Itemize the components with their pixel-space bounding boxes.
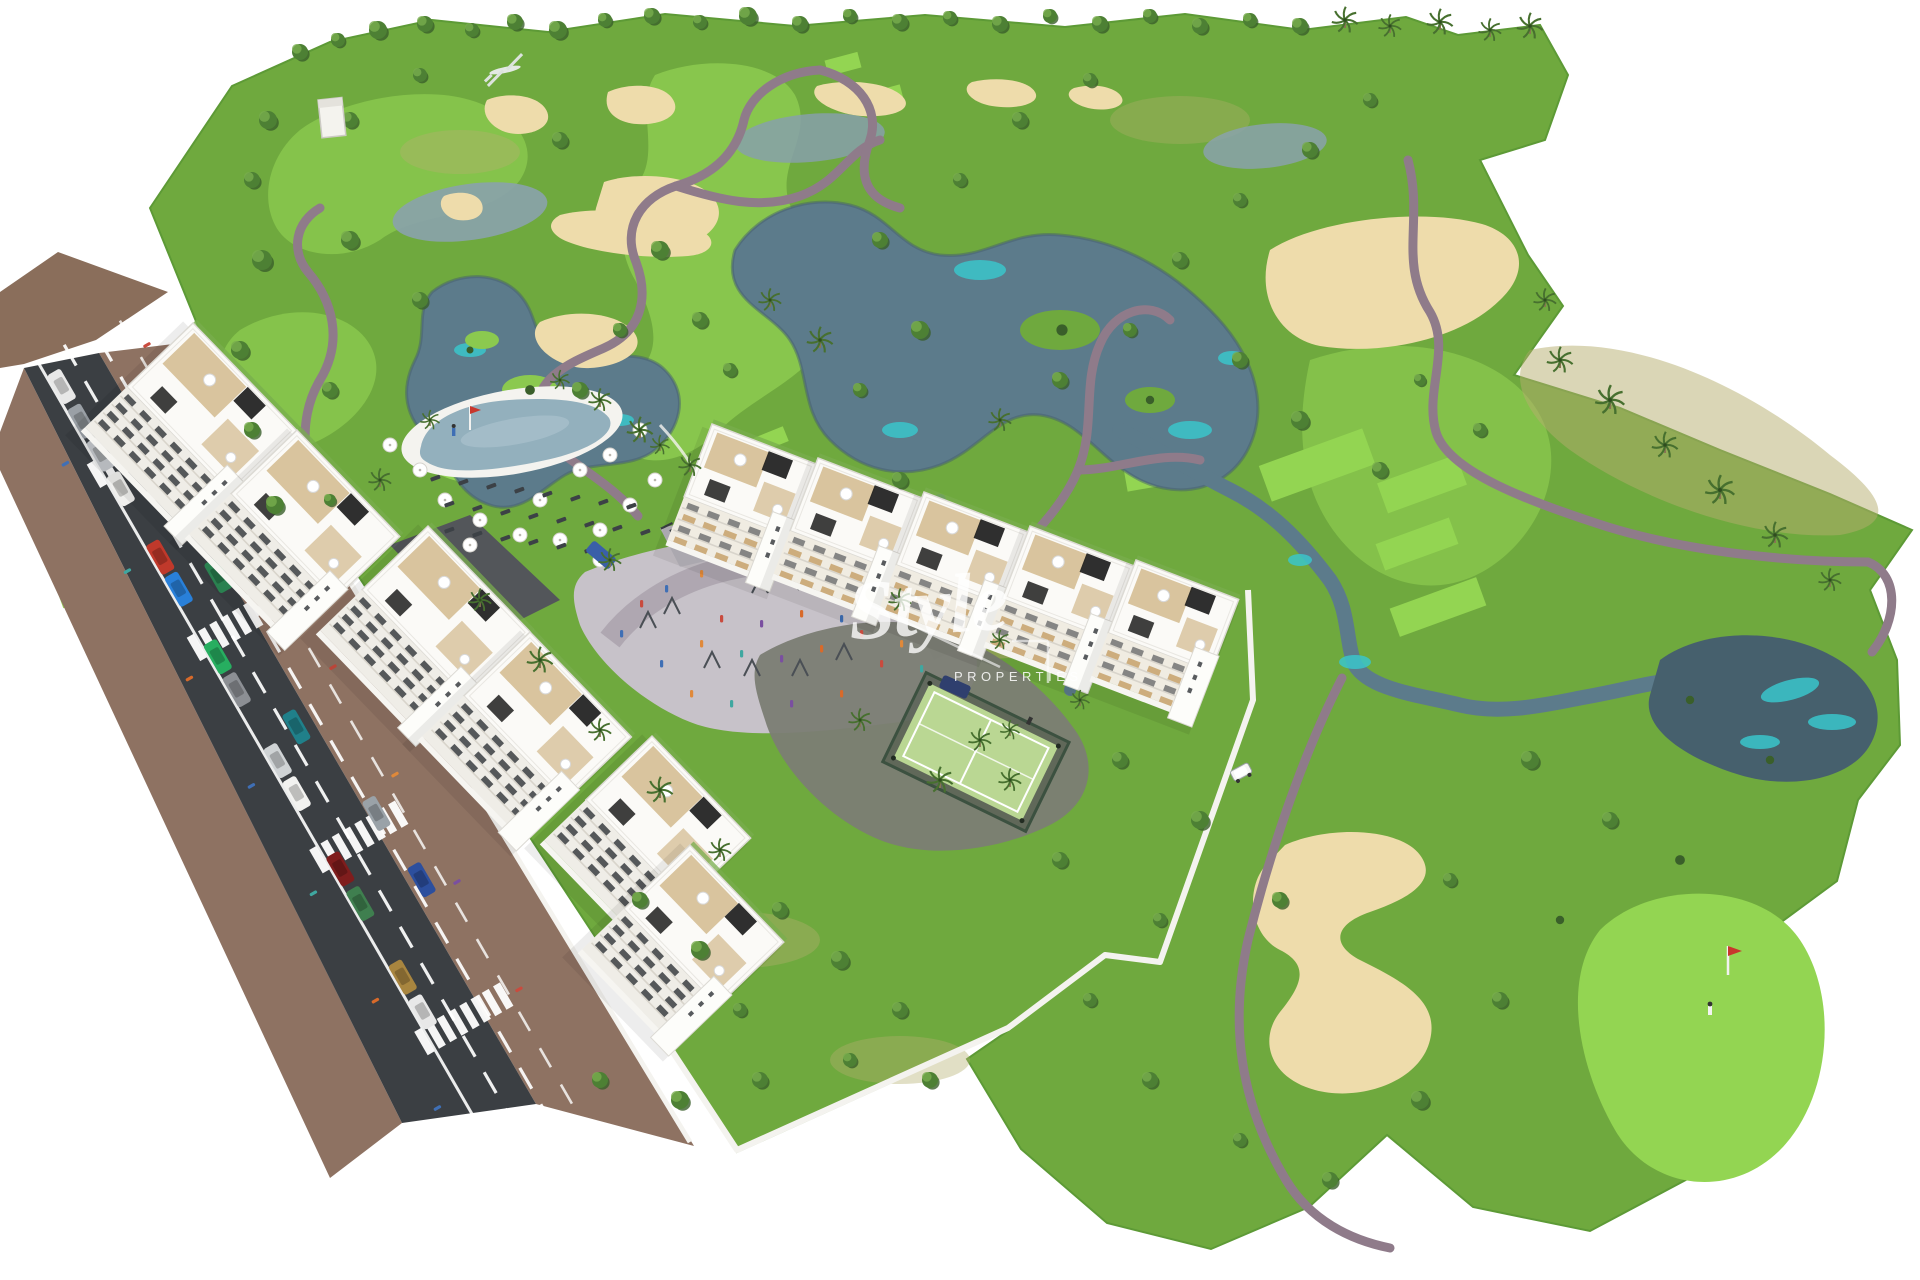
tree-canopy: [1012, 112, 1022, 122]
tree-canopy: [632, 892, 642, 902]
tree-canopy: [1112, 752, 1122, 762]
tree-canopy: [1473, 423, 1481, 431]
tree-canopy: [1052, 372, 1062, 382]
palm-crown: [598, 728, 601, 731]
plaza-person: [640, 600, 643, 608]
tree-canopy: [259, 111, 270, 122]
tree-canopy: [692, 312, 702, 322]
plaza-person: [800, 610, 803, 618]
tree-canopy: [341, 231, 352, 242]
tree: [1043, 9, 1058, 24]
tree-canopy: [992, 16, 1002, 26]
tree-canopy: [792, 16, 802, 26]
palm-crown: [598, 398, 601, 401]
tree-canopy: [1233, 193, 1241, 201]
bush-canopy: [467, 347, 474, 354]
bush: [1686, 696, 1694, 704]
tree-canopy: [1602, 812, 1612, 822]
parasol-pole: [609, 454, 612, 457]
tree-canopy: [1492, 992, 1502, 1002]
bush-canopy: [1766, 756, 1774, 764]
tree-canopy: [723, 363, 731, 371]
tree-canopy: [1292, 18, 1302, 28]
tree-canopy: [292, 44, 302, 54]
lane-dash: [504, 1108, 519, 1130]
palm-crown: [559, 379, 562, 382]
tree-canopy: [413, 68, 421, 76]
tree-canopy: [1092, 16, 1102, 26]
tree-canopy: [572, 382, 582, 392]
tree-canopy: [244, 172, 254, 182]
tree-canopy: [549, 21, 560, 32]
tree-canopy: [231, 341, 242, 352]
tree-canopy: [322, 382, 332, 392]
bush: [1056, 324, 1067, 335]
palm-crown: [1663, 443, 1667, 447]
tree-canopy: [1083, 993, 1091, 1001]
aerial-render-canvas: Style PROPERTIES: [0, 0, 1920, 1280]
tree-canopy: [644, 8, 654, 18]
tree-canopy: [592, 1072, 602, 1082]
palm-crown: [378, 478, 381, 481]
palm-crown: [1009, 729, 1012, 732]
plaza-person: [880, 660, 883, 668]
bush: [1675, 855, 1685, 865]
tree-canopy: [266, 496, 277, 507]
tree-canopy: [1322, 1172, 1332, 1182]
tree-canopy: [412, 292, 422, 302]
palm-crown: [429, 419, 432, 422]
tree-canopy: [1521, 751, 1532, 762]
bush: [525, 385, 535, 395]
tree-canopy: [892, 472, 902, 482]
plaza-person: [730, 700, 733, 708]
palm-crown: [659, 444, 662, 447]
palm-crown: [898, 598, 901, 601]
plaza-person: [900, 640, 903, 648]
palm-crown: [538, 658, 542, 662]
bush-canopy: [1056, 324, 1067, 335]
bush-canopy: [1556, 916, 1564, 924]
tree-canopy: [1153, 913, 1161, 921]
plaza-person: [760, 620, 763, 628]
tree-canopy: [831, 951, 842, 962]
palm-crown: [1343, 18, 1347, 22]
palm-crown: [658, 788, 662, 792]
palm-crown: [1543, 298, 1546, 301]
bush-canopy: [1675, 855, 1685, 865]
tree: [671, 1091, 691, 1111]
tree-canopy: [739, 7, 750, 18]
tree-canopy: [772, 902, 782, 912]
palm-crown: [1528, 24, 1532, 28]
tree-canopy: [1232, 352, 1242, 362]
parasol-pole: [469, 544, 472, 547]
tree-canopy: [843, 1053, 851, 1061]
palm-crown: [1828, 578, 1831, 581]
palm-crown: [858, 718, 861, 721]
bush: [1146, 396, 1154, 404]
tree-canopy: [465, 23, 473, 31]
bush-canopy: [525, 385, 535, 395]
plaza-person: [740, 650, 743, 658]
tree-canopy: [1142, 1072, 1152, 1082]
plaza-person: [665, 585, 668, 593]
tree-canopy: [1083, 73, 1091, 81]
bush: [1766, 756, 1774, 764]
palm-crown: [1558, 358, 1562, 362]
tree-canopy: [843, 9, 851, 17]
tree-canopy: [1272, 892, 1282, 902]
palm-crown: [1718, 488, 1722, 492]
palm-crown: [1608, 398, 1612, 402]
tree-canopy: [1191, 811, 1202, 822]
tree-canopy: [417, 16, 427, 26]
tree-canopy: [1414, 374, 1421, 381]
palm-crown: [818, 338, 822, 342]
tree-canopy: [1123, 323, 1131, 331]
parasol-pole: [539, 499, 542, 502]
parasol-pole: [444, 499, 447, 502]
tree-canopy: [1443, 873, 1451, 881]
palm-crown: [688, 463, 691, 466]
palm-crown: [938, 778, 942, 782]
parasol-pole: [519, 534, 522, 537]
palm-crown: [978, 738, 981, 741]
tree-canopy: [1243, 13, 1251, 21]
bush-canopy: [1686, 696, 1694, 704]
plaza-person: [690, 690, 693, 698]
lane-dash: [560, 1140, 575, 1162]
bush: [467, 347, 474, 354]
tree-canopy: [331, 33, 339, 41]
plaza-person: [700, 640, 703, 648]
bush-canopy: [1146, 396, 1154, 404]
parasol-pole: [599, 529, 602, 532]
edge-dash: [119, 320, 132, 340]
palm-crown: [1438, 20, 1442, 24]
tree-canopy: [1302, 142, 1312, 152]
tree-canopy: [853, 383, 861, 391]
tree-canopy: [922, 1072, 932, 1082]
tree-canopy: [752, 1072, 762, 1082]
tree-canopy: [943, 11, 951, 19]
tree-canopy: [598, 13, 606, 21]
bush: [1556, 916, 1564, 924]
parasol-pole: [559, 539, 562, 542]
edge-dash: [581, 1120, 594, 1140]
plaza-person: [780, 655, 783, 663]
palm-crown: [638, 428, 642, 432]
tree-canopy: [693, 15, 701, 23]
palm-crown: [1079, 699, 1082, 702]
plaza-person: [840, 690, 843, 698]
palm-crown: [718, 848, 721, 851]
tree-canopy: [1363, 93, 1371, 101]
tree-canopy: [1291, 411, 1302, 422]
tree-canopy: [691, 941, 702, 952]
tree-canopy: [1233, 1133, 1241, 1141]
palm-crown: [1388, 24, 1391, 27]
palm-crown: [1008, 778, 1011, 781]
plaza-person: [790, 700, 793, 708]
tree-canopy: [1372, 462, 1382, 472]
tree-canopy: [1043, 9, 1051, 17]
parasol-pole: [579, 469, 582, 472]
plaza-person: [620, 630, 623, 638]
palm-crown: [1773, 533, 1777, 537]
tree-canopy: [552, 132, 562, 142]
tree-canopy: [892, 1002, 902, 1012]
plaza-person: [920, 665, 923, 673]
tree-canopy: [651, 241, 662, 252]
tree-canopy: [733, 1003, 741, 1011]
tree-canopy: [1411, 1091, 1422, 1102]
tree-canopy: [244, 422, 254, 432]
plaza-person: [660, 660, 663, 668]
palm-crown: [608, 558, 611, 561]
tree-canopy: [872, 232, 882, 242]
tree-canopy: [1143, 9, 1151, 17]
tree-canopy: [892, 14, 902, 24]
tree-canopy: [953, 173, 961, 181]
golf-resort-aerial-render: [0, 0, 1920, 1280]
parasol-pole: [654, 479, 657, 482]
plaza-person: [720, 615, 723, 623]
lane-dash: [525, 1144, 540, 1166]
palm-crown: [1488, 28, 1491, 31]
plaza-person: [860, 630, 863, 638]
palm-crown: [999, 639, 1002, 642]
tree-canopy: [252, 250, 264, 262]
tree-canopy: [1172, 252, 1182, 262]
tree-canopy: [613, 323, 621, 331]
tree-canopy: [324, 494, 331, 501]
tree-canopy: [1192, 18, 1202, 28]
palm-crown: [478, 598, 481, 601]
maintenance-hut: [318, 97, 346, 137]
parasol-pole: [419, 469, 422, 472]
palm-crown: [998, 418, 1001, 421]
tree-canopy: [507, 14, 517, 24]
palm-crown: [768, 298, 771, 301]
parasol-pole: [479, 519, 482, 522]
tree-canopy: [671, 1091, 682, 1102]
parasol-pole: [389, 444, 392, 447]
plaza-person: [820, 645, 823, 653]
tree-canopy: [911, 321, 922, 332]
tree-canopy: [1052, 852, 1062, 862]
tree-canopy: [369, 21, 380, 32]
